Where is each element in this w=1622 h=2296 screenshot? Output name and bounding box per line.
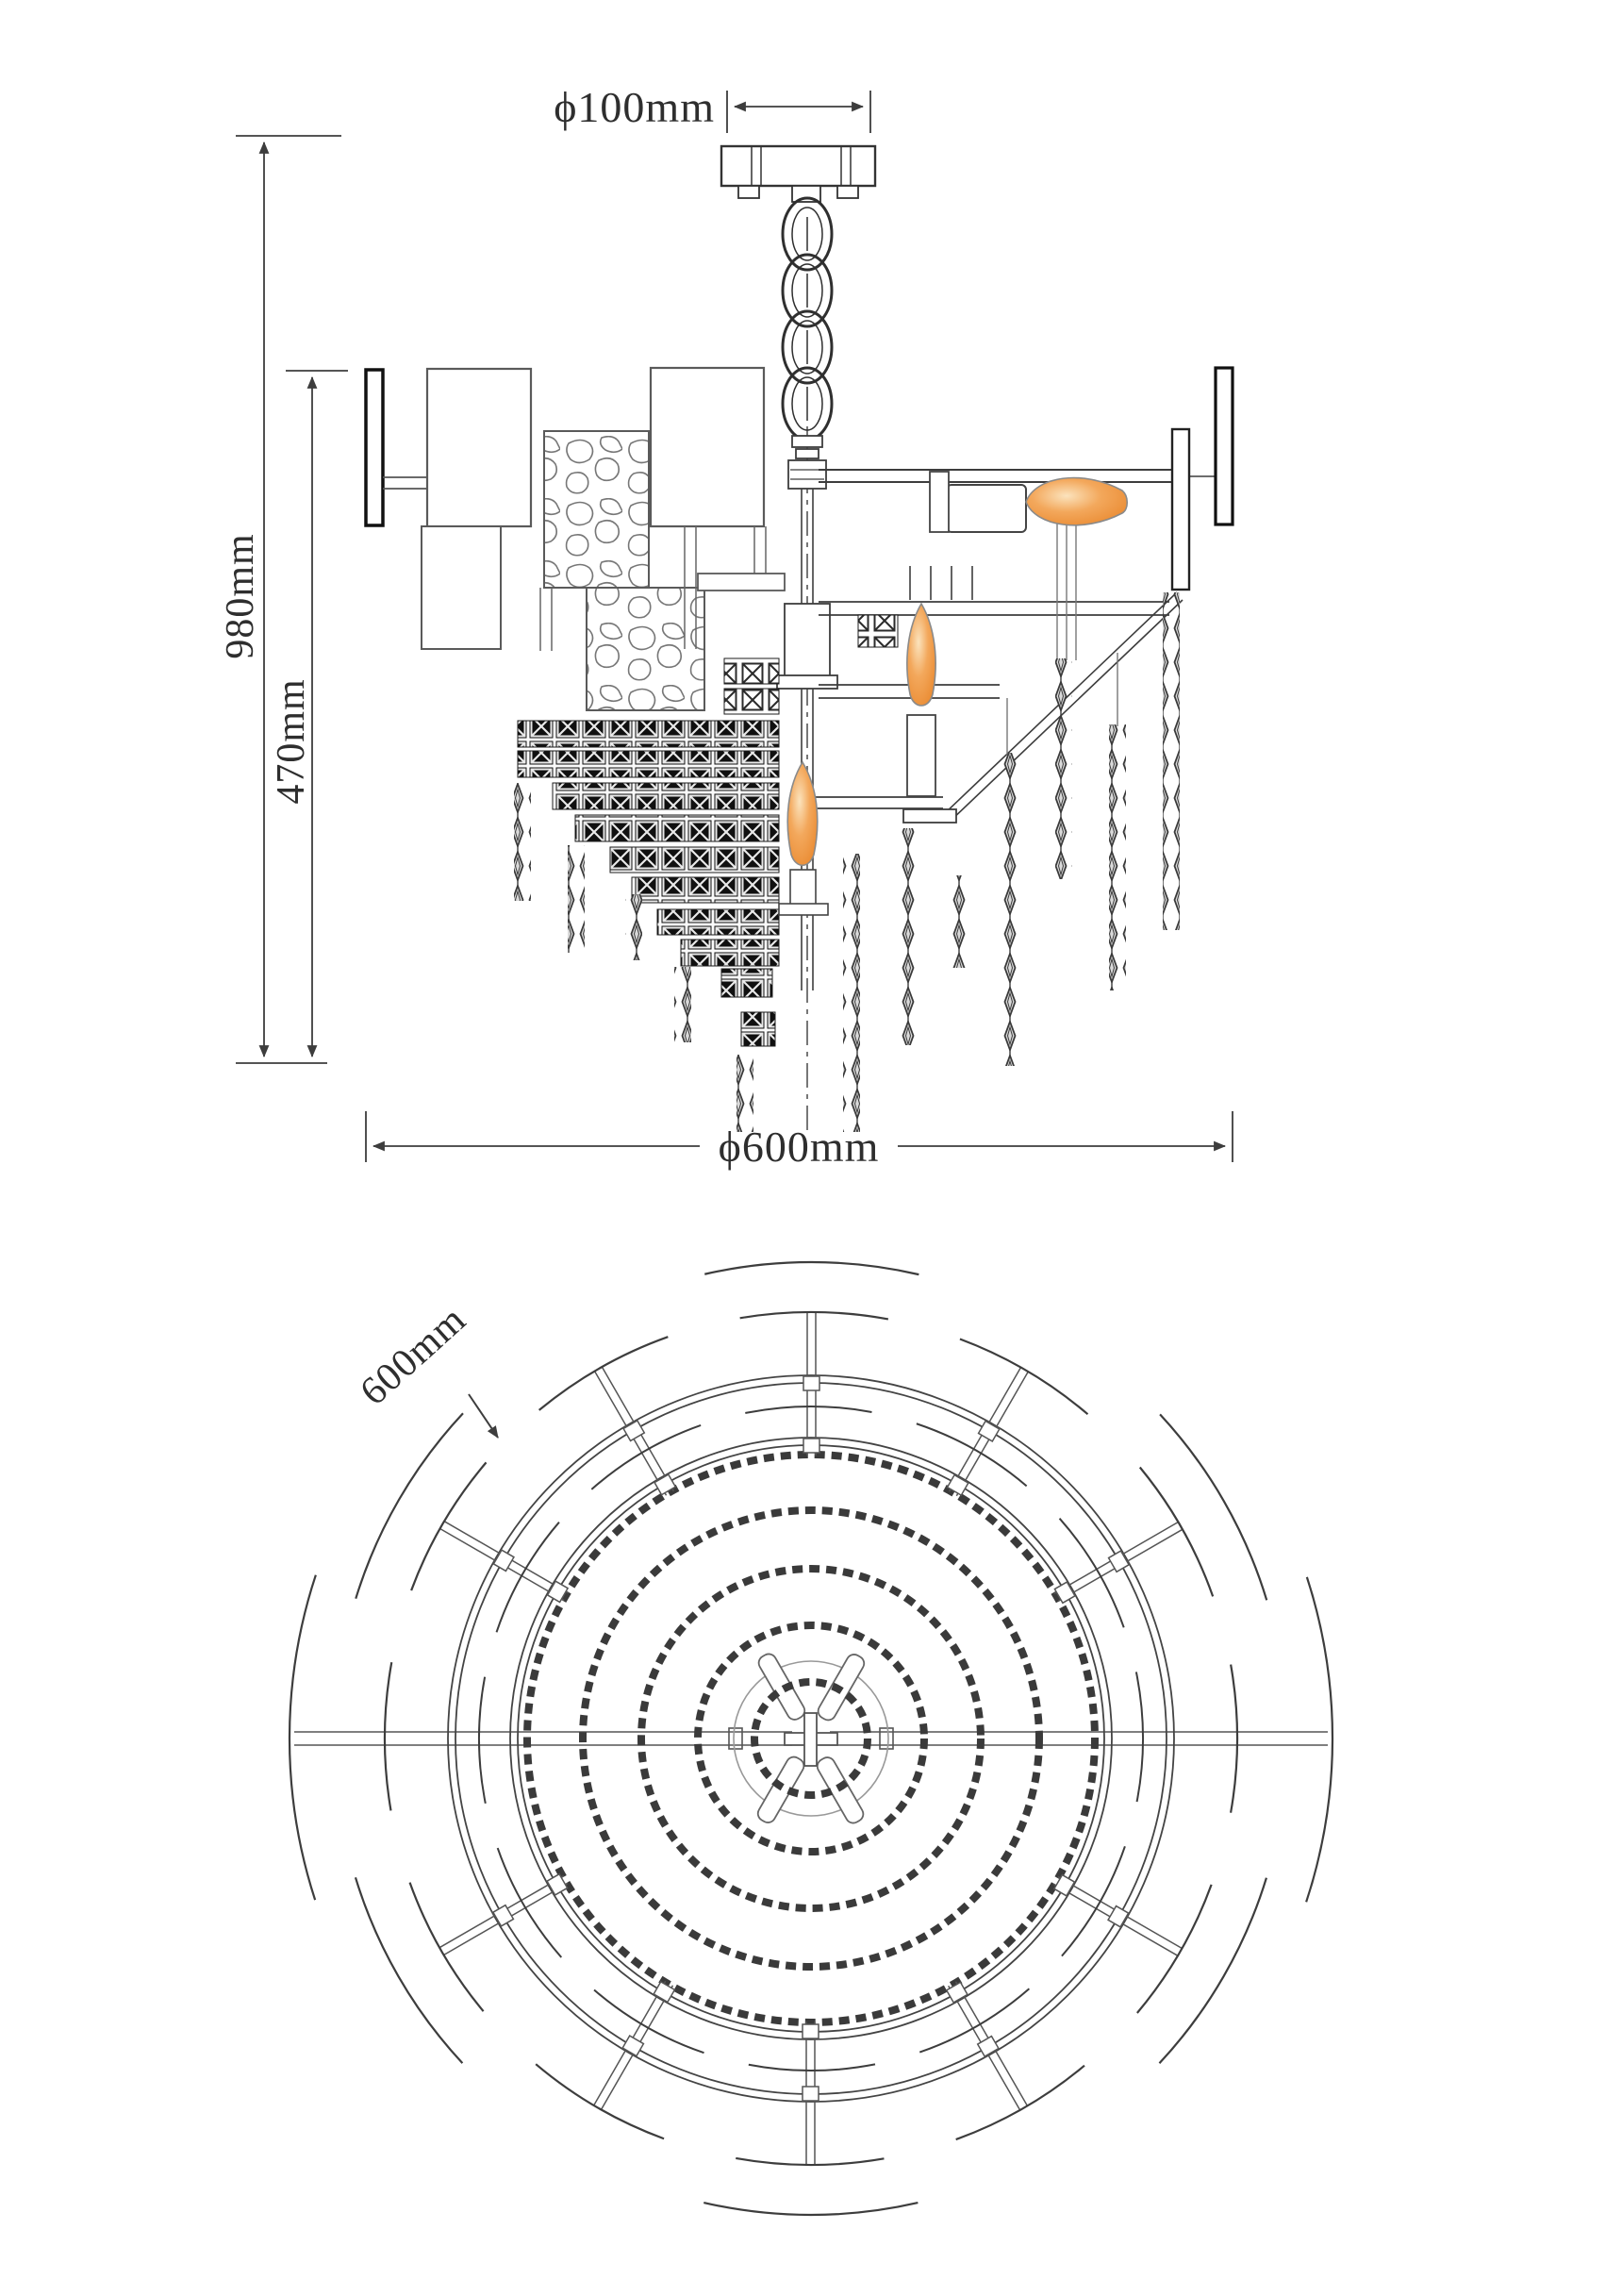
flame-horizontal	[1026, 478, 1127, 525]
chandelier-technical-drawing: ϕ100mm 980mm 470mm ϕ600mm	[0, 0, 1622, 2296]
dim-plan-diameter: 600mm	[352, 1298, 498, 1438]
flame-mid	[907, 604, 935, 706]
canopy-bolt-left	[738, 186, 759, 198]
shade-rect-b	[651, 368, 764, 526]
crystal-cascade	[518, 615, 898, 1046]
candle-horizontal-body	[947, 485, 1026, 532]
side-view: ϕ100mm 980mm 470mm ϕ600mm	[219, 83, 1233, 1171]
plan-panel-arcs	[154, 1081, 1468, 2296]
suspension-chain	[783, 198, 832, 440]
dim-body-height: 470mm	[270, 371, 348, 1056]
edge-glass-panel-left	[366, 370, 383, 525]
shade-rect-a2	[422, 526, 501, 649]
candle-center-body	[790, 870, 816, 906]
dim-body-diameter: ϕ600mm	[366, 1111, 1233, 1171]
candles	[779, 472, 1127, 915]
drawing-canvas: ϕ100mm 980mm 470mm ϕ600mm	[0, 0, 1622, 2296]
dim-body-diameter-label: ϕ600mm	[719, 1123, 880, 1171]
dim-mount-diameter: ϕ100mm	[554, 83, 870, 133]
dim-body-height-label: 470mm	[270, 678, 313, 804]
dim-total-height-label: 980mm	[219, 533, 262, 658]
dim-total-height: 980mm	[219, 136, 341, 1063]
left-shades	[366, 368, 785, 710]
edge-glass-panel-right-2	[1216, 368, 1233, 524]
candle-mid-body	[907, 715, 935, 796]
dim-mount-diameter-label: ϕ100mm	[554, 83, 715, 131]
shade-rect-a	[427, 369, 531, 526]
crackle-panel-1	[544, 431, 649, 588]
left-bridge	[698, 574, 785, 591]
crackle-panel-2	[587, 588, 704, 710]
ceiling-canopy	[721, 146, 875, 202]
canopy-bolt-right	[837, 186, 858, 198]
dim-plan-diameter-label: 600mm	[352, 1298, 474, 1414]
plan-view: 600mm	[154, 1081, 1468, 2296]
edge-glass-panel-right-1	[1172, 429, 1189, 590]
strut-bracket	[903, 809, 956, 823]
